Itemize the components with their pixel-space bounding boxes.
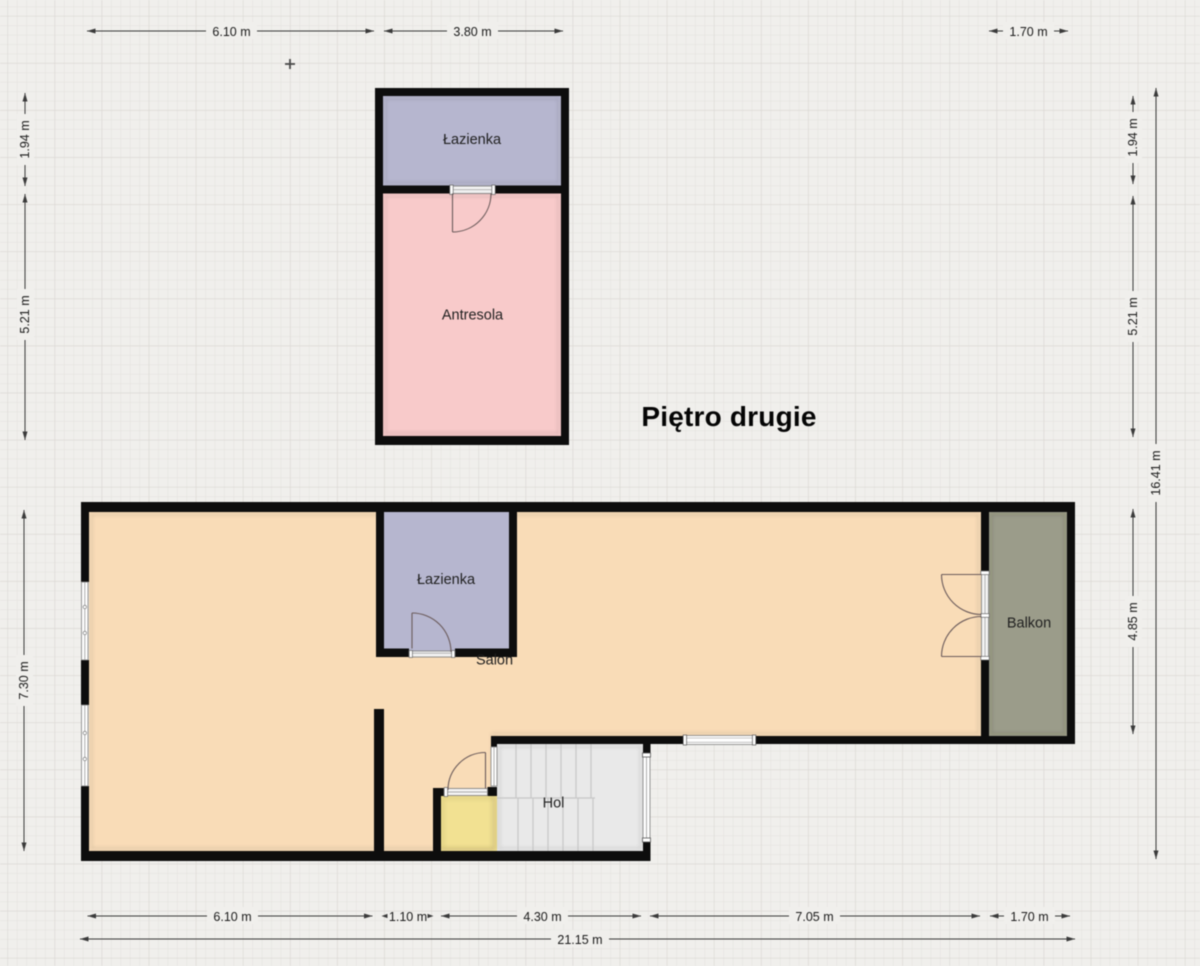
svg-text:16.41 m: 16.41 m bbox=[1149, 450, 1163, 495]
svg-text:Piętro drugie: Piętro drugie bbox=[641, 401, 816, 432]
svg-text:Hol: Hol bbox=[543, 796, 565, 812]
svg-text:1.70 m: 1.70 m bbox=[1009, 25, 1047, 39]
svg-text:4.85 m: 4.85 m bbox=[1126, 602, 1140, 640]
svg-text:Salon: Salon bbox=[476, 653, 513, 669]
svg-text:Antresola: Antresola bbox=[442, 308, 504, 324]
svg-text:Balkon: Balkon bbox=[1007, 616, 1051, 632]
svg-text:5.21 m: 5.21 m bbox=[1126, 297, 1140, 335]
svg-text:3.80 m: 3.80 m bbox=[453, 25, 491, 39]
svg-text:1.94 m: 1.94 m bbox=[1126, 118, 1140, 156]
svg-text:1.10 m: 1.10 m bbox=[389, 910, 427, 924]
svg-text:1.94 m: 1.94 m bbox=[18, 120, 32, 158]
svg-text:6.10 m: 6.10 m bbox=[212, 25, 250, 39]
svg-text:1.70 m: 1.70 m bbox=[1010, 910, 1048, 924]
svg-text:21.15 m: 21.15 m bbox=[557, 933, 602, 947]
svg-text:6.10 m: 6.10 m bbox=[213, 910, 251, 924]
svg-text:7.30 m: 7.30 m bbox=[17, 661, 31, 699]
svg-text:5.21 m: 5.21 m bbox=[18, 295, 32, 333]
svg-text:Łazienka: Łazienka bbox=[417, 572, 476, 588]
svg-text:4.30 m: 4.30 m bbox=[523, 910, 561, 924]
svg-text:7.05 m: 7.05 m bbox=[795, 910, 833, 924]
svg-text:Łazienka: Łazienka bbox=[443, 132, 502, 148]
